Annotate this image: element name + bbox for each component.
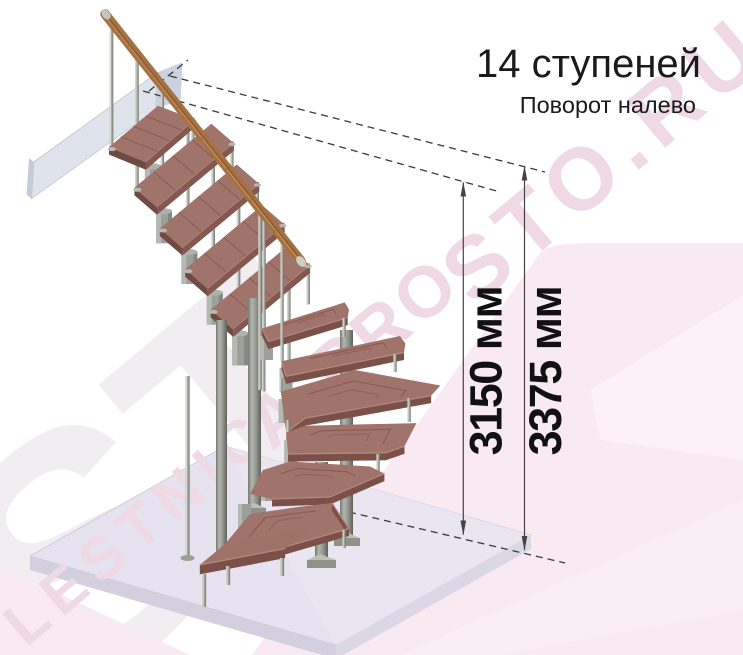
svg-text:Поворот налево: Поворот налево [520, 92, 696, 118]
svg-text:14 ступеней: 14 ступеней [476, 42, 701, 86]
svg-text:3375 мм: 3375 мм [520, 287, 571, 456]
svg-text:3150 мм: 3150 мм [461, 287, 512, 456]
